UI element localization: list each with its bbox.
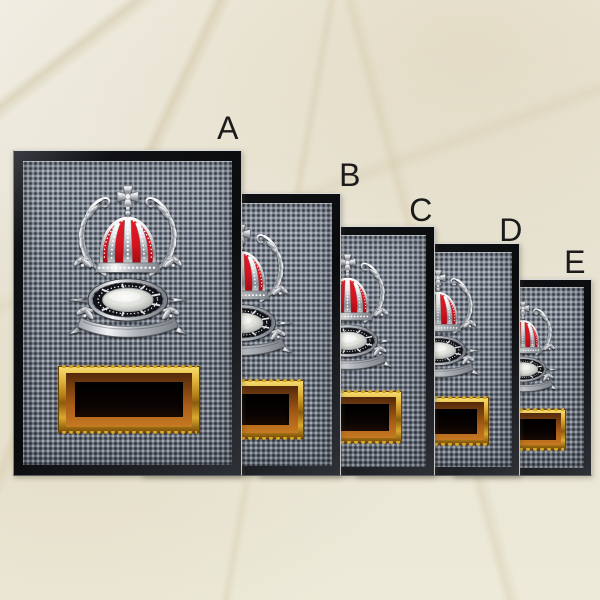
carbon-weave-surface [23, 161, 232, 465]
plate-copper-bevel [66, 373, 193, 427]
size-label-c: C [409, 194, 433, 226]
plaque-size-a [13, 150, 242, 476]
size-label-a: A [217, 112, 239, 144]
plaque-size-comparison-photo: A B C D E [0, 0, 600, 600]
size-label-b: B [339, 159, 361, 191]
size-label-d: D [499, 214, 523, 246]
engraving-plate [58, 366, 199, 434]
size-label-e: E [564, 246, 586, 278]
plate-blank-black-face [75, 382, 183, 418]
crown-laurel-medallion-emblem-icon [64, 183, 192, 344]
